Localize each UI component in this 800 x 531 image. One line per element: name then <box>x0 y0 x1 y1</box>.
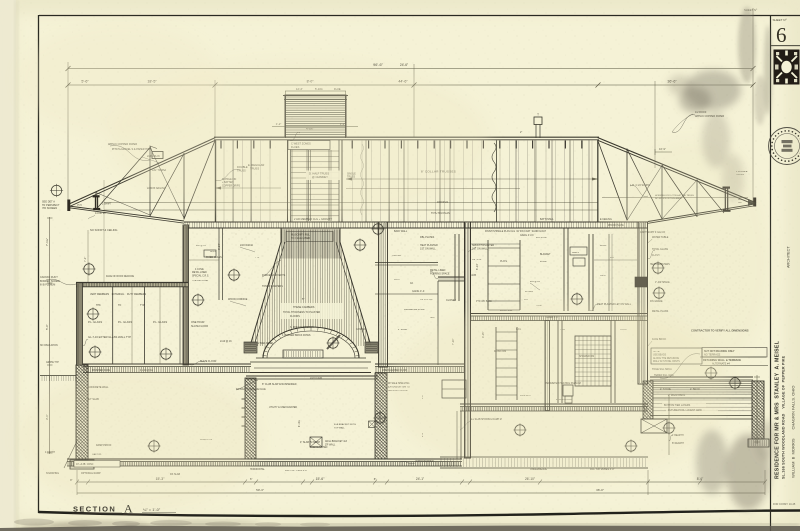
svg-text:PLYWD: PLYWD <box>525 291 533 293</box>
svg-text:ONE HOUR: ONE HOUR <box>191 321 205 324</box>
svg-text:ASH DUMP: ASH DUMP <box>310 377 323 380</box>
svg-text:7’-1¾”: 7’-1¾” <box>45 238 49 246</box>
svg-text:5/8″ GYP: 5/8″ GYP <box>472 259 482 261</box>
svg-text:4 CORNER BRICK ROWS: 4 CORNER BRICK ROWS <box>282 334 311 337</box>
svg-text:DAMPER: DAMPER <box>356 328 366 331</box>
svg-text:2x10 @ 16: 2x10 @ 16 <box>220 340 232 343</box>
svg-text:GRATE TYP: GRATE TYP <box>46 361 59 364</box>
svg-text:FINISH SHINGLE PLAS CLG W/ FI: FINISH SHINGLE PLAS CLG W/ FIN COAT SAND… <box>485 230 546 233</box>
svg-text:5/8 GYP BD: 5/8 GYP BD <box>420 299 433 301</box>
svg-text:THE RM COND: THE RM COND <box>192 280 209 282</box>
svg-text:16 KIP 24: 16 KIP 24 <box>437 201 449 204</box>
svg-text:FACE OF ROOF DECKING: FACE OF ROOF DECKING <box>106 275 134 278</box>
svg-text:DUCT: DUCT <box>394 279 401 281</box>
svg-text:SHEET Nº: SHEET Nº <box>773 18 788 22</box>
svg-text:HW FLR: HW FLR <box>392 255 401 257</box>
svg-text:S. ROUGH BRICKWK: S. ROUGH BRICKWK <box>290 326 314 329</box>
svg-text:PLATE: PLATE <box>500 260 508 263</box>
svg-text:FLOORS: FLOORS <box>290 315 300 318</box>
svg-text:2x8 @ 16: 2x8 @ 16 <box>196 245 207 247</box>
svg-text:E CEILING: E CEILING <box>600 218 612 221</box>
svg-text:24’-6”: 24’-6” <box>400 63 408 67</box>
svg-text:36’-0”: 36’-0” <box>596 488 604 492</box>
svg-text:NO INSULATION: NO INSULATION <box>40 344 58 347</box>
svg-text:PERIMETER INSUL: PERIMETER INSUL <box>404 309 426 311</box>
svg-text:50’-3”: 50’-3” <box>256 488 264 492</box>
svg-text:5’-6”: 5’-6” <box>45 324 49 330</box>
svg-text:2″ RIGID: 2″ RIGID <box>398 329 407 331</box>
svg-text:96’-6”: 96’-6” <box>373 63 383 67</box>
svg-text:2 SHAFT: 2 SHAFT <box>102 203 112 206</box>
svg-text:ITR SCREEN: ITR SCREEN <box>42 207 57 210</box>
svg-text:SLATE FLOOR: SLATE FLOOR <box>200 360 217 363</box>
svg-text:7’-1”: 7’-1” <box>83 257 87 262</box>
svg-text:TOT+TOU PLAN: TOT+TOU PLAN <box>431 212 450 215</box>
svg-text:T: T <box>537 113 539 117</box>
svg-text:RA: RA <box>410 282 414 285</box>
svg-text:RESIDENCE FOR MR & MRS STANLE: RESIDENCE FOR MR & MRS STANLEY A. MEISEL <box>775 340 781 479</box>
svg-text:6”: 6” <box>250 477 252 481</box>
svg-text:SILL: SILL <box>430 317 435 319</box>
svg-text:SL.166 SOUTH WOODLAND ROAD: SL.166 SOUTH WOODLAND ROAD VILLAGE OF PE… <box>782 355 786 479</box>
svg-text:SLATE FLOOR: SLATE FLOOR <box>191 325 208 328</box>
svg-text:2″: 2″ <box>520 131 522 134</box>
svg-text:WOOD CORNICE: WOOD CORNICE <box>228 298 248 301</box>
svg-text:4 COVE: 4 COVE <box>195 268 204 271</box>
svg-text:GANG 4’-0: GANG 4’-0 <box>412 290 425 293</box>
svg-text:CLOSET: CLOSET <box>446 299 456 302</box>
svg-text:UTILITY & UNEXCAVATED: UTILITY & UNEXCAVATED <box>269 406 297 409</box>
svg-text:IN B PLENUM: IN B PLENUM <box>40 284 55 287</box>
svg-text:1ST ON WALL: 1ST ON WALL <box>420 248 436 251</box>
svg-text:BATT INSUL: BATT INSUL <box>540 218 554 221</box>
svg-text:PTD WD BASE: PTD WD BASE <box>476 300 492 303</box>
svg-text:6: 6 <box>776 23 787 47</box>
svg-text:VAPOR BARRIER: VAPOR BARRIER <box>415 460 434 463</box>
svg-text:5x10: 5x10 <box>77 205 83 207</box>
svg-text:NO SOFFIT & CEILING: NO SOFFIT & CEILING <box>90 228 117 232</box>
svg-text:FILL TOP THICK 4’-0”: FILL TOP THICK 4’-0” <box>285 470 308 472</box>
svg-text:14 KIP 14: 14 KIP 14 <box>95 212 106 215</box>
svg-text:FOR CONST. 10-45: FOR CONST. 10-45 <box>773 503 796 506</box>
svg-text:5″: 5″ <box>302 297 304 301</box>
svg-text:8″ CLUB SLAB W/SUSPENDED: 8″ CLUB SLAB W/SUSPENDED <box>262 383 297 386</box>
svg-text:FINISHED FLRG: FINISHED FLRG <box>92 369 110 372</box>
svg-text:VENT: VENT <box>600 275 607 277</box>
svg-text:THESE CAMBERS: THESE CAMBERS <box>293 306 315 309</box>
svg-text:TYP: TYP <box>255 257 260 259</box>
svg-text:WILLIAM B MORRIS CHAG: WILLIAM B MORRIS CHAGRIN FALLS. OHIO <box>791 386 796 478</box>
svg-text:HORIZONTAL: HORIZONTAL <box>250 468 265 471</box>
svg-text:DOUP: DOUP <box>600 245 607 247</box>
svg-text:BLKG: BLKG <box>210 251 216 253</box>
svg-text:CANVAS DUCT: CANVAS DUCT <box>40 276 58 279</box>
svg-text:15’-6”: 15’-6” <box>316 477 325 481</box>
svg-text:6”: 6” <box>374 477 377 481</box>
svg-text:2x4 @ 16: 2x4 @ 16 <box>530 281 541 283</box>
svg-text:JAMB: JAMB <box>470 274 477 277</box>
svg-text:ARCHITECT: ARCHITECT <box>787 246 791 268</box>
svg-text:NO BACK FURNACE FLUE: NO BACK FURNACE FLUE <box>236 388 266 391</box>
svg-text:TOTAL THICKNESS TO PLASTER: TOTAL THICKNESS TO PLASTER <box>283 311 320 314</box>
svg-text:2x6 FASCIA: 2x6 FASCIA <box>240 244 253 247</box>
svg-text:24’-1”: 24’-1” <box>416 477 424 481</box>
